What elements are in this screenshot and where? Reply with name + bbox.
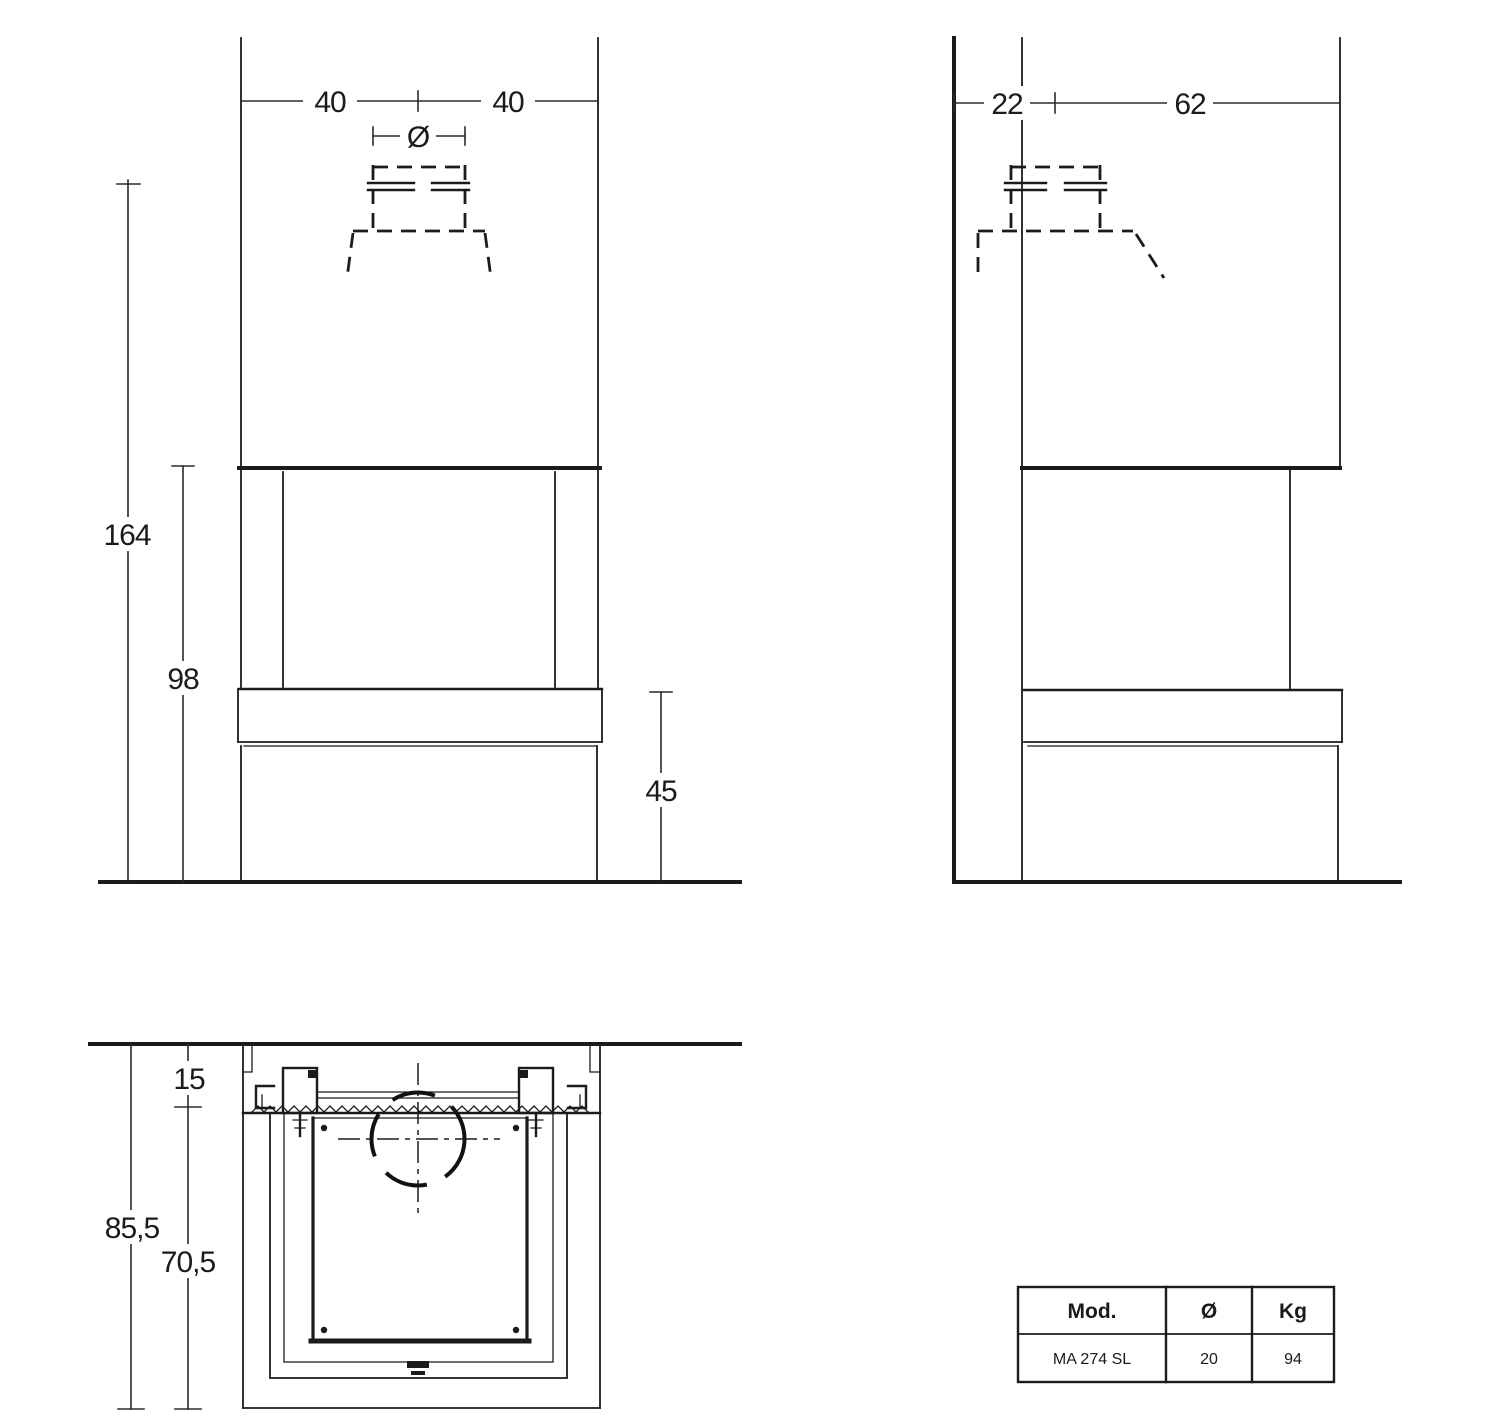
plan-bracket-left-pad bbox=[308, 1070, 316, 1078]
front-height-bench-label: 45 bbox=[645, 775, 677, 808]
front-hood-right-slant-dash bbox=[485, 233, 491, 278]
front-hood-left-slant-dash bbox=[347, 233, 353, 278]
front-view: 40 40 Ø 164 98 bbox=[99, 38, 740, 882]
plan-bracket-right-pad bbox=[520, 1070, 528, 1078]
side-depth-back-label: 22 bbox=[991, 88, 1023, 121]
front-height-opening-dimension: 98 bbox=[160, 466, 206, 882]
front-width-right-label: 40 bbox=[492, 86, 524, 119]
plan-depth-inner-dimension: 70,5 bbox=[156, 1107, 220, 1409]
plan-screw-bottom-left bbox=[321, 1327, 327, 1333]
drawing-page: 40 40 Ø 164 98 bbox=[0, 0, 1500, 1427]
spec-table: Mod. Ø Kg MA 274 SL 20 94 bbox=[1018, 1287, 1334, 1382]
front-height-opening-label: 98 bbox=[167, 663, 199, 696]
spec-table-header-weight: Kg bbox=[1279, 1300, 1307, 1323]
plan-screw-bottom-right bbox=[513, 1327, 519, 1333]
front-flue-diameter-dimension: Ø bbox=[373, 120, 465, 154]
plan-angle-profile-left bbox=[256, 1086, 274, 1108]
spec-table-header-mod: Mod. bbox=[1068, 1300, 1117, 1323]
spec-table-header-diameter: Ø bbox=[1201, 1300, 1217, 1323]
side-view: 22 62 bbox=[954, 38, 1400, 882]
front-flue-pipe-dashed bbox=[347, 165, 491, 278]
plan-angle-profile-right bbox=[568, 1086, 586, 1108]
spec-table-value-model: MA 274 SL bbox=[1053, 1351, 1131, 1368]
plan-notch-right bbox=[590, 1044, 599, 1072]
side-depth-dimension: 22 62 bbox=[954, 86, 1340, 121]
spec-table-value-diameter: 20 bbox=[1200, 1351, 1218, 1368]
front-height-total-label: 164 bbox=[103, 519, 150, 552]
plan-handle-mark-small bbox=[411, 1371, 425, 1375]
plan-notch-left bbox=[244, 1044, 252, 1072]
side-flue-pipe-dashed bbox=[978, 165, 1164, 278]
side-depth-front-label: 62 bbox=[1174, 88, 1206, 121]
spec-table-value-weight: 94 bbox=[1284, 1351, 1302, 1368]
front-width-left-label: 40 bbox=[314, 86, 346, 119]
plan-view: 15 85,5 70,5 bbox=[90, 1044, 740, 1409]
plan-depth-total-label: 85,5 bbox=[105, 1212, 160, 1245]
side-hood-front-slant-dash bbox=[1136, 234, 1164, 278]
front-height-total-dimension: 164 bbox=[99, 180, 156, 882]
front-flue-symbol-label: Ø bbox=[407, 121, 430, 154]
front-height-bench-dimension: 45 bbox=[638, 692, 684, 880]
plan-screw-top-left bbox=[321, 1125, 327, 1131]
front-width-dimension: 40 40 bbox=[241, 84, 598, 119]
technical-drawing-canvas: 40 40 Ø 164 98 bbox=[0, 0, 1500, 1427]
plan-insulation-zigzag bbox=[252, 1106, 588, 1112]
plan-wall-offset-label: 15 bbox=[173, 1063, 205, 1096]
plan-handle-mark bbox=[407, 1361, 429, 1368]
plan-wall-offset-dimension: 15 bbox=[166, 1044, 212, 1107]
plan-depth-total-dimension: 85,5 bbox=[100, 1044, 164, 1409]
plan-screw-top-right bbox=[513, 1125, 519, 1131]
plan-depth-inner-label: 70,5 bbox=[161, 1246, 216, 1279]
